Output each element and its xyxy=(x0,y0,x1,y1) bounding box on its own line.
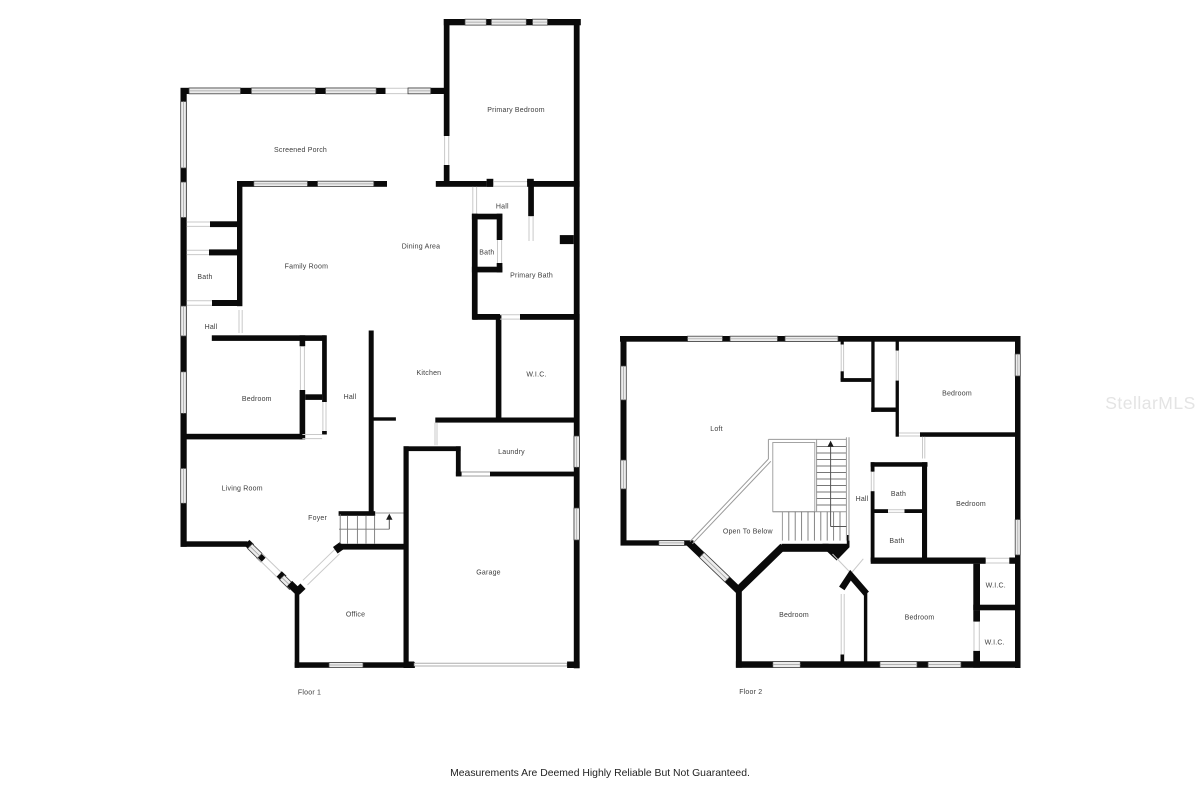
svg-text:Floor 2: Floor 2 xyxy=(739,689,762,696)
svg-text:Hall: Hall xyxy=(856,496,869,503)
svg-text:Bedroom: Bedroom xyxy=(242,396,272,403)
svg-text:Office: Office xyxy=(346,612,365,619)
svg-text:Open To Below: Open To Below xyxy=(723,529,774,536)
svg-text:Bedroom: Bedroom xyxy=(956,501,986,508)
svg-text:W.I.C.: W.I.C. xyxy=(526,372,546,379)
svg-text:Living Room: Living Room xyxy=(222,486,263,493)
svg-text:Foyer: Foyer xyxy=(308,515,327,522)
svg-text:Hall: Hall xyxy=(496,204,509,211)
svg-text:Loft: Loft xyxy=(710,426,722,433)
svg-text:Garage: Garage xyxy=(476,570,501,577)
svg-text:Primary Bath: Primary Bath xyxy=(510,273,553,280)
svg-text:Bath: Bath xyxy=(479,250,494,257)
svg-text:Bedroom: Bedroom xyxy=(905,615,935,622)
svg-text:Bath: Bath xyxy=(889,538,904,545)
svg-text:W.I.C.: W.I.C. xyxy=(985,640,1005,647)
svg-text:Primary Bedroom: Primary Bedroom xyxy=(487,107,544,114)
svg-text:Hall: Hall xyxy=(344,394,357,401)
svg-text:Measurements Are Deemed Highly: Measurements Are Deemed Highly Reliable … xyxy=(450,768,750,779)
svg-text:Kitchen: Kitchen xyxy=(417,370,442,377)
svg-text:Bedroom: Bedroom xyxy=(779,612,809,619)
svg-text:Bath: Bath xyxy=(891,491,906,498)
svg-text:Hall: Hall xyxy=(205,324,218,331)
svg-text:Bedroom: Bedroom xyxy=(942,391,972,398)
svg-text:Floor 1: Floor 1 xyxy=(298,690,321,697)
svg-text:Family Room: Family Room xyxy=(285,264,328,271)
svg-text:Screened Porch: Screened Porch xyxy=(274,147,327,154)
svg-text:StellarMLS: StellarMLS xyxy=(1105,393,1196,413)
svg-text:Bath: Bath xyxy=(197,274,212,281)
svg-text:W.I.C.: W.I.C. xyxy=(986,583,1006,590)
svg-text:Laundry: Laundry xyxy=(498,449,525,456)
svg-text:Dining Area: Dining Area xyxy=(402,244,440,251)
